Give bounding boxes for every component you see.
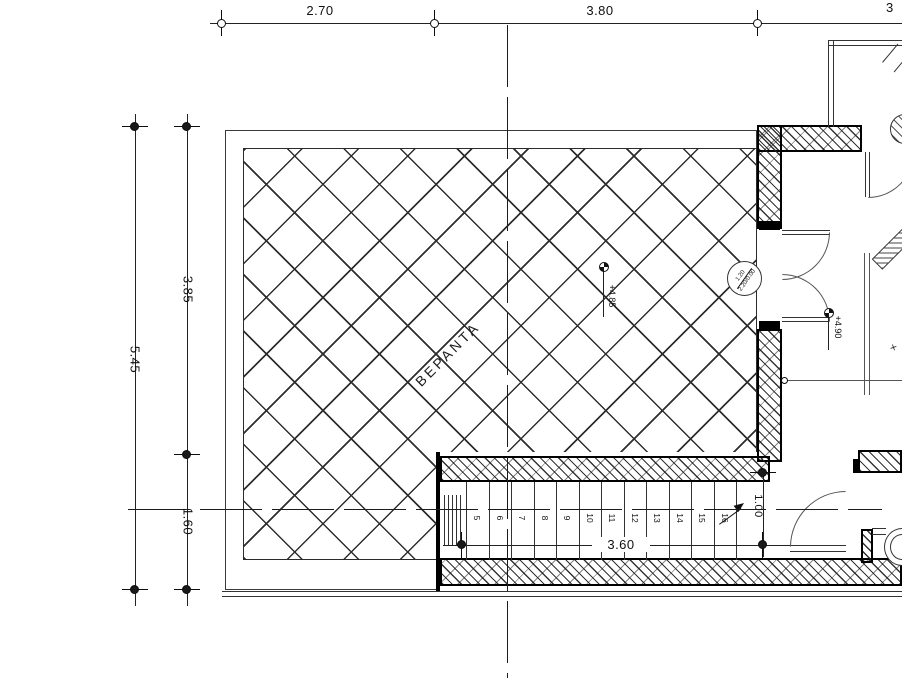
stair-tread-line [691,482,692,560]
elevation-value-veranda: +4.85 [607,276,617,316]
level-marker-leader [828,316,829,350]
dim-label-360: 3.60 [592,537,650,552]
door-tag-circle: 1.20 2.20/0.00 [727,261,762,296]
dim-label-270: 2.70 [270,3,370,18]
dim-label-partial: 3 [886,0,902,15]
counter-tick [781,377,788,384]
elevation-value-interior: +4.90 [833,307,843,347]
interior-partition [864,253,870,395]
wall-block-notch [853,459,860,473]
diagonal-mark [882,44,902,73]
fixture-connector [872,528,886,529]
wall-right-upper [757,125,782,229]
stair-tread-line [511,482,512,560]
stair-step-number: 9 [562,508,572,528]
double-door-bottom-swing [782,274,830,322]
dimension-tick [758,540,767,549]
dimension-tick [182,450,191,459]
dim-label-545: 5.45 [128,335,143,385]
stair-step-number: 11 [607,508,617,528]
stair-top-wall [440,456,770,482]
fireplace-detail [872,225,902,270]
dim-label-100: 1.00 [752,481,764,531]
dimension-tick [130,585,139,594]
vertical-axis-line [507,25,508,678]
dimension-tick [182,585,191,594]
stair-step-number: 8 [540,508,550,528]
fixture-connector [872,534,886,535]
dimension-tick [130,122,139,131]
level-marker-leader [603,271,604,317]
stair-tread-line [489,482,490,560]
glazing-mullion [828,40,834,127]
wall-block [858,450,902,473]
floor-plan-drawing: ΒΕΡΑΝΤΑ +4.85 × 1.20 2.20/0.00 [0,0,902,678]
door-jamb-cap-top [759,221,780,230]
stair-step-number: 13 [652,508,662,528]
stair-step-number: 14 [675,508,685,528]
glazing-top-edge [828,40,902,46]
stair-step-number: 10 [585,508,595,528]
level-marker-icon [599,262,609,272]
door-tag-text: 1.20 2.20/0.00 [731,264,758,293]
stair-step-number: 6 [495,508,505,528]
dimension-tick [182,122,191,131]
stair-tread-line [736,482,737,560]
dimension-tick [753,19,762,28]
wall-right-lower [757,329,782,462]
dimension-tick [217,19,226,28]
door-swing-right-room [868,152,902,198]
double-door-top-swing [782,232,830,280]
dim-label-380: 3.80 [550,3,650,18]
stair-tread-line [579,482,580,560]
pavement-edge [222,591,902,597]
stair-tread-line [466,482,467,560]
dim-label-385: 3.85 [181,265,196,315]
horizontal-axis-line [128,509,882,510]
dim-line-top [210,23,902,24]
stair-tread-line [669,482,670,560]
dimension-tick [457,540,466,549]
dim-label-160: 1.60 [181,497,196,547]
stair-step-number: 7 [517,508,527,528]
counter-edge-line [786,380,902,381]
stair-step-number: 15 [697,508,707,528]
stair-step-number: 5 [472,508,482,528]
stair-tread-line [714,482,715,560]
stair-tread-line [534,482,535,560]
tag-circle-partial [890,114,902,144]
dimension-tick [758,468,767,477]
dimension-tick [430,19,439,28]
stair-step-number: 12 [630,508,640,528]
stair-bottom-wall [440,558,902,586]
stair-tread-line [556,482,557,560]
door-jamb-cap-bottom [759,321,780,330]
x-marks: × [888,341,899,355]
